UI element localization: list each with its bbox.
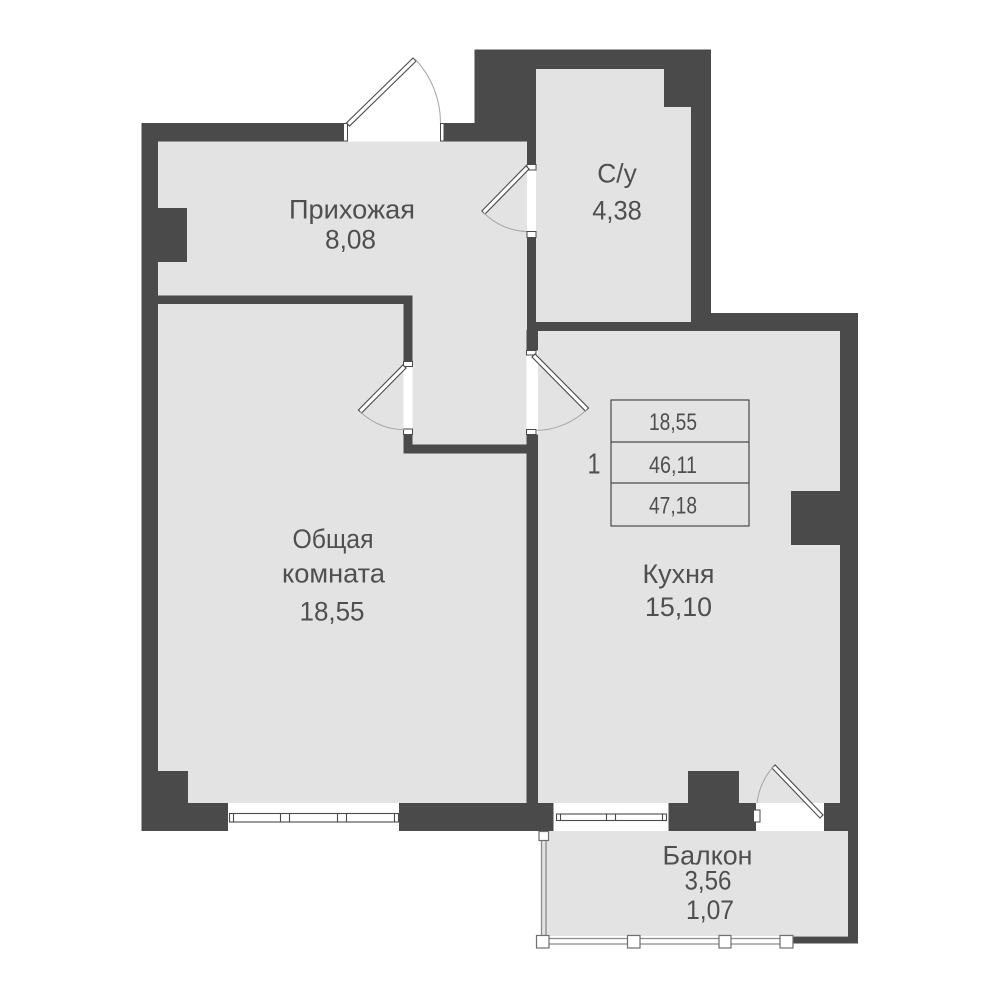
svg-text:1,07: 1,07 (686, 895, 734, 925)
svg-text:С/у: С/у (597, 159, 637, 189)
svg-text:1: 1 (588, 448, 601, 480)
svg-text:47,18: 47,18 (649, 493, 697, 520)
svg-text:18,55: 18,55 (300, 597, 365, 627)
svg-text:4,38: 4,38 (592, 196, 642, 226)
svg-text:3,56: 3,56 (685, 866, 732, 896)
svg-text:15,10: 15,10 (645, 592, 712, 622)
svg-text:8,08: 8,08 (325, 225, 376, 255)
svg-text:46,11: 46,11 (649, 452, 697, 479)
svg-text:комната: комната (282, 559, 386, 589)
svg-text:Прихожая: Прихожая (289, 195, 415, 225)
svg-text:Кухня: Кухня (643, 559, 715, 589)
svg-text:18,55: 18,55 (649, 409, 697, 436)
svg-text:Общая: Общая (293, 524, 374, 554)
